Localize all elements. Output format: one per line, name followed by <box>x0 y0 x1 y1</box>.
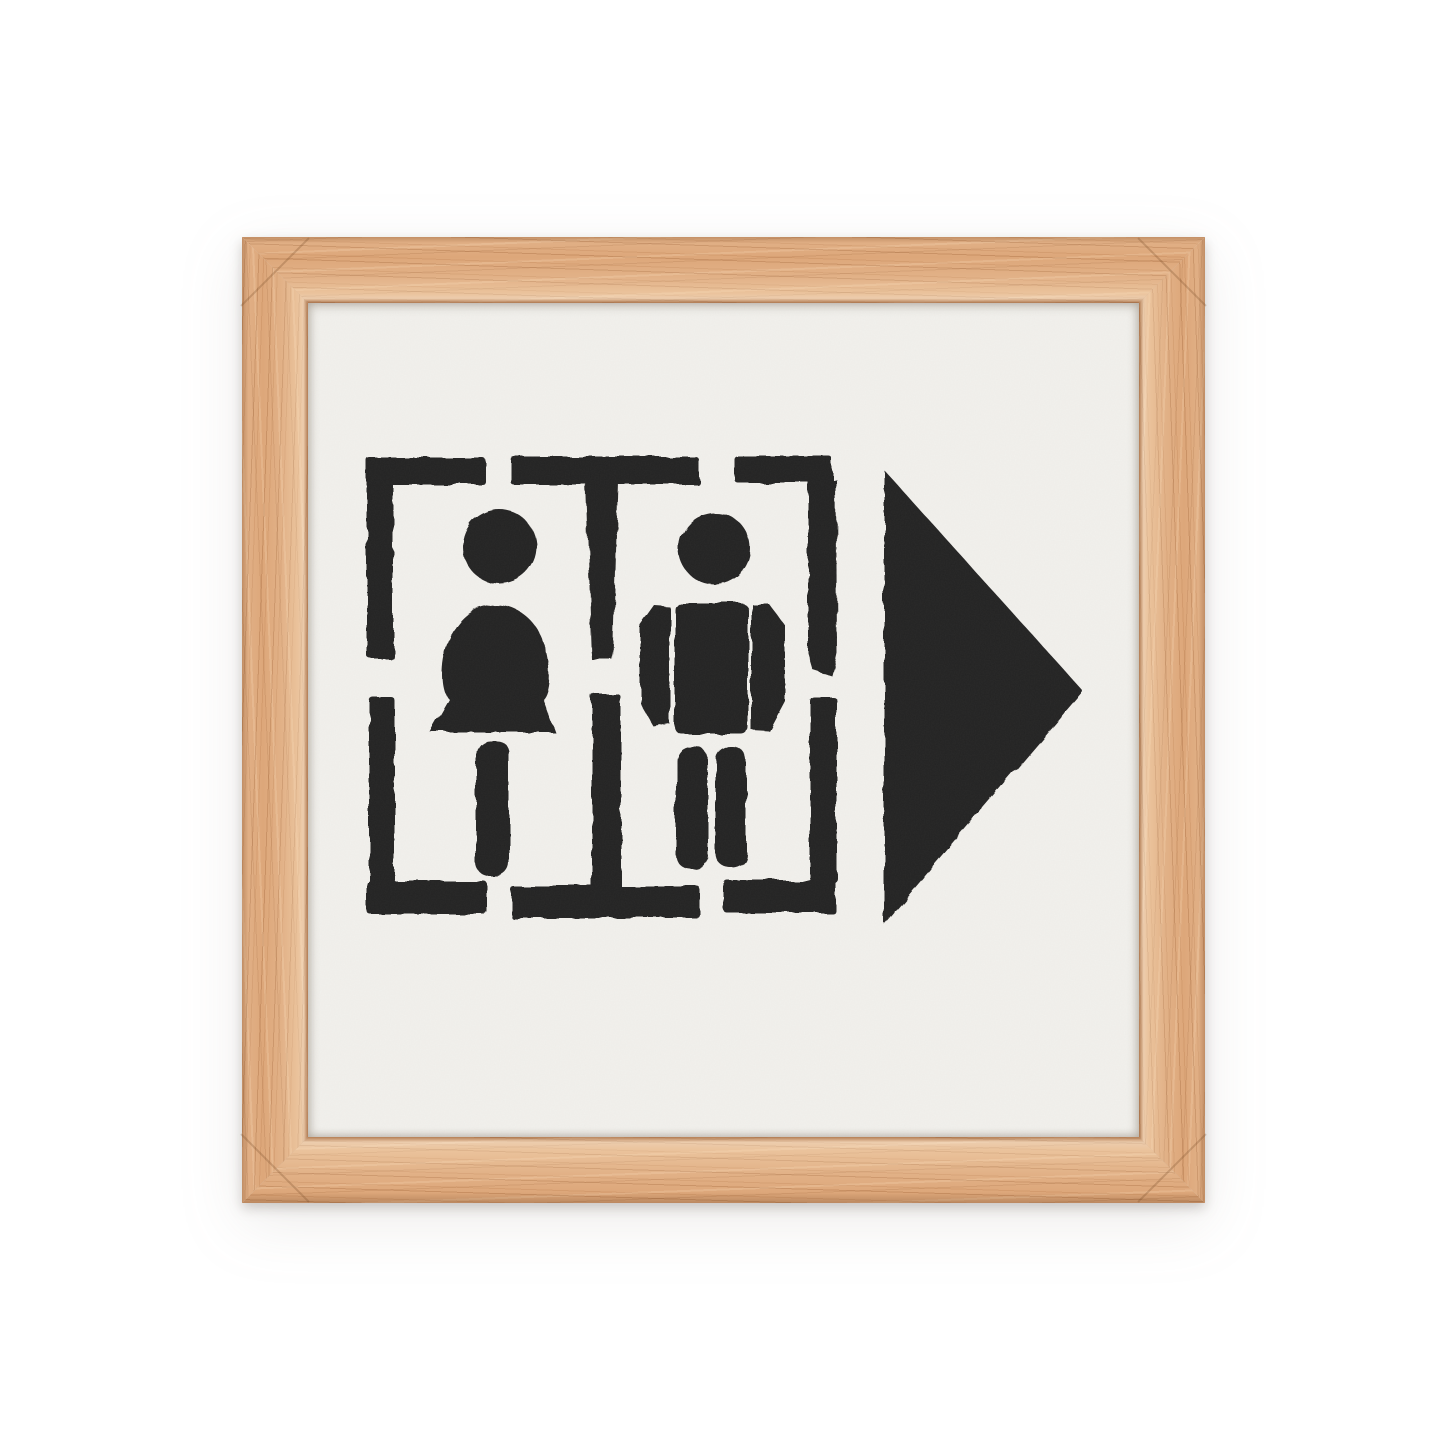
frame-right-rail <box>1139 237 1205 1203</box>
frame-bottom-rail <box>242 1137 1205 1203</box>
frame-top-rail <box>242 237 1205 303</box>
frame-left-rail <box>242 237 308 1203</box>
framed-poster <box>242 237 1205 1203</box>
photo-background <box>0 0 1445 1445</box>
stencil-artwork <box>308 303 1139 1137</box>
paper-texture-overlay <box>308 303 1139 1137</box>
print-paper <box>308 303 1139 1137</box>
